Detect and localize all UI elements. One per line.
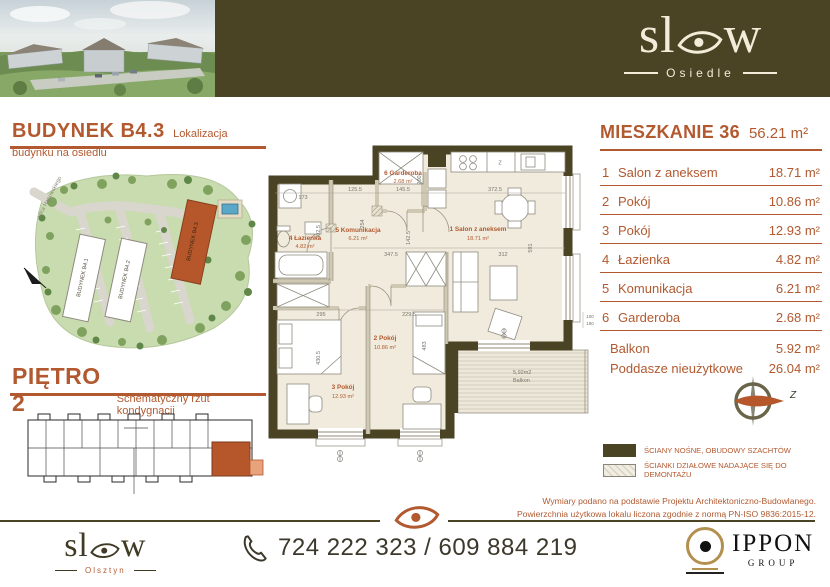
room-number: 1 (602, 165, 618, 180)
svg-text:12.93 m²: 12.93 m² (332, 394, 354, 400)
balcony: 5,92m2 Balkon (458, 350, 588, 413)
room-area: 10.86 m² (769, 194, 820, 209)
svg-text:10.86 m²: 10.86 m² (374, 345, 396, 351)
room-area: 6.21 m² (776, 281, 820, 296)
room-area: 4.82 m² (776, 252, 820, 267)
footer-eye-icon (394, 503, 440, 533)
footer-brand-left: sl (64, 528, 89, 564)
schematic-balcony-highlight (250, 460, 263, 475)
svg-text:5,92m2: 5,92m2 (513, 370, 531, 376)
phone-number: 724 222 323 / 609 884 219 (278, 534, 577, 562)
svg-text:4.82 m²: 4.82 m² (296, 244, 315, 250)
room-name: Salon z aneksem (618, 165, 769, 180)
svg-text:312: 312 (498, 252, 507, 258)
svg-text:591: 591 (528, 243, 534, 252)
room-row: 1 Salon z aneksem 18.71 m² (600, 157, 822, 186)
svg-text:18.71 m²: 18.71 m² (467, 236, 489, 242)
header-bar: sl w Osiedle (215, 0, 830, 97)
svg-text:142.5: 142.5 (406, 231, 412, 245)
legend-label: ŚCIANKI DZIAŁOWE NADAJĄCE SIĘ DO DEMONTA… (644, 461, 828, 479)
room-name: Pokój (618, 194, 769, 209)
room-name: Komunikacja (618, 281, 776, 296)
apartment-title-row: MIESZKANIE 36 56.21 m² (600, 122, 822, 151)
svg-text:2 Pokój: 2 Pokój (374, 335, 397, 342)
svg-text:125.5: 125.5 (348, 187, 362, 193)
footer-dash-left (55, 570, 77, 572)
extra-row-balkon: Balkon 5.92 m² (600, 336, 822, 356)
schematic-unit-highlight (212, 442, 250, 476)
measurement-notes: Wymiary podano na podstawie Projektu Arc… (516, 495, 816, 520)
footer-brand-right: w (121, 528, 147, 564)
room-name: Pokój (618, 223, 769, 238)
phone-icon (240, 534, 268, 562)
svg-text:6.21 m²: 6.21 m² (349, 236, 368, 242)
phone-contact: 724 222 323 / 609 884 219 (240, 534, 577, 562)
room-area: 2.68 m² (776, 310, 820, 325)
compass-west-label: Z (789, 390, 797, 401)
svg-text:3 Pokój: 3 Pokój (332, 384, 355, 391)
room-row: 6 Garderoba 2.68 m² (600, 302, 822, 331)
extra-row-poddasze: Poddasze nieużytkowe 26.04 m² (600, 356, 822, 376)
room-number: 4 (602, 252, 618, 267)
room2-chair-icon (413, 387, 431, 402)
svg-text:430.5: 430.5 (316, 351, 322, 365)
room-row: 5 Komunikacja 6.21 m² (600, 273, 822, 302)
building-section-heading: BUDYNEK B4.3 Lokalizacja budynku na osie… (12, 120, 265, 161)
brand-subtitle: Osiedle (666, 66, 735, 80)
footer-brand-city: Olsztyn (85, 566, 126, 575)
room-number: 2 (602, 194, 618, 209)
footer-dash-right (134, 570, 156, 572)
brand-text-right: w (724, 8, 763, 64)
room3-bed-icon (277, 320, 341, 374)
room2-wardrobe-icon (406, 252, 446, 286)
plan-legend: ŚCIANY NOŚNE, OBUDOWY SZACHTÓW ŚCIANKI D… (603, 444, 828, 483)
aerial-photo (0, 0, 215, 97)
ippon-group-label: GROUP (732, 558, 814, 568)
slow-osiedle-logo: sl w Osiedle (613, 8, 788, 80)
room3-desk-icon (287, 384, 309, 424)
bathtub-icon (275, 252, 327, 278)
shaft (428, 152, 446, 167)
slow-olsztyn-logo: sl w Olsztyn (55, 528, 156, 575)
svg-text:100: 100 (586, 314, 594, 319)
extra-area: 5.92 m² (776, 341, 820, 356)
room-row: 4 Łazienka 4.82 m² (600, 244, 822, 273)
room-row: 2 Pokój 10.86 m² (600, 186, 822, 215)
apartment-title: MIESZKANIE 36 (600, 122, 740, 143)
room-number: 5 (602, 281, 618, 296)
apartment-panel: MIESZKANIE 36 56.21 m² 1 Salon z aneksem… (600, 122, 822, 376)
svg-text:173: 173 (298, 195, 307, 201)
svg-text:180: 180 (586, 321, 594, 326)
floor-rule (10, 393, 266, 396)
legend-label: ŚCIANY NOŚNE, OBUDOWY SZACHTÓW (644, 446, 791, 455)
hall-wardrobe-icon (277, 284, 329, 307)
extra-name: Balkon (610, 341, 776, 356)
svg-text:1 Salon z aneksem: 1 Salon z aneksem (450, 226, 507, 233)
apartment-floor-plan: 5,92m2 Balkon (263, 136, 600, 472)
room-number: 3 (602, 223, 618, 238)
brand-dash-left (624, 72, 658, 74)
pool (218, 200, 242, 218)
ippon-name: IPPON (732, 532, 814, 556)
apartment-total-area: 56.21 m² (749, 125, 808, 142)
legend-row: ŚCIANY NOŚNE, OBUDOWY SZACHTÓW (603, 444, 828, 457)
room-area: 12.93 m² (769, 223, 820, 238)
room2-bed-icon (413, 312, 445, 374)
svg-text:347.5: 347.5 (384, 252, 398, 258)
sofa-icon (453, 252, 478, 312)
building-rule (10, 146, 266, 149)
brand-dash-right (743, 72, 777, 74)
legend-row: ŚCIANKI DZIAŁOWE NADAJĄCE SIĘ DO DEMONTA… (603, 461, 828, 479)
svg-text:4 Łazienka: 4 Łazienka (289, 235, 322, 242)
room-row: 3 Pokój 12.93 m² (600, 215, 822, 244)
ippon-mark-icon (686, 527, 724, 574)
svg-text:372.5: 372.5 (488, 187, 502, 193)
svg-text:295: 295 (316, 312, 325, 318)
svg-text:2.68 m²: 2.68 m² (394, 179, 413, 185)
coffee-table-icon (490, 266, 517, 300)
room-name: Garderoba (618, 310, 776, 325)
room-name: Łazienka (618, 252, 776, 267)
room2-desk-icon (403, 404, 441, 429)
footer-brand-eye-icon (90, 541, 120, 561)
footer-divider-right (448, 520, 815, 522)
svg-text:5 Komunikacja: 5 Komunikacja (335, 227, 381, 234)
svg-text:229.5: 229.5 (402, 312, 416, 318)
brochure-page: sl w Osiedle BUDYNEK B4.3 Lokalizacja bu… (0, 0, 830, 587)
eye-icon (677, 28, 723, 58)
compass-rose: Z (726, 374, 798, 432)
note-line: Wymiary podano na podstawie Projektu Arc… (516, 495, 816, 508)
legend-swatch-solid (603, 444, 636, 457)
compass-arrow (735, 396, 784, 407)
room-number: 6 (602, 310, 618, 325)
building-title: BUDYNEK B4.3 (12, 120, 165, 143)
footer-divider-left (0, 520, 380, 522)
svg-text:6 Garderoba: 6 Garderoba (384, 170, 422, 177)
room-area: 18.71 m² (769, 165, 820, 180)
floor-schematic (12, 398, 265, 494)
ippon-group-logo: IPPON GROUP (686, 527, 814, 574)
svg-text:Balkon: Balkon (513, 378, 530, 384)
kitchen-strip: Z (451, 152, 565, 172)
svg-text:483: 483 (422, 341, 428, 350)
room3-chair-icon (309, 396, 322, 412)
note-line: Powierzchnia użytkowa lokalu liczona zgo… (516, 508, 816, 521)
svg-text:145.5: 145.5 (396, 187, 410, 193)
brand-text-left: sl (639, 8, 676, 64)
legend-swatch-hatch (603, 464, 636, 477)
site-map: BUDYNEK B4.1 BUDYNEK B4.2 BUDYNEK B4.3 u… (12, 160, 265, 360)
